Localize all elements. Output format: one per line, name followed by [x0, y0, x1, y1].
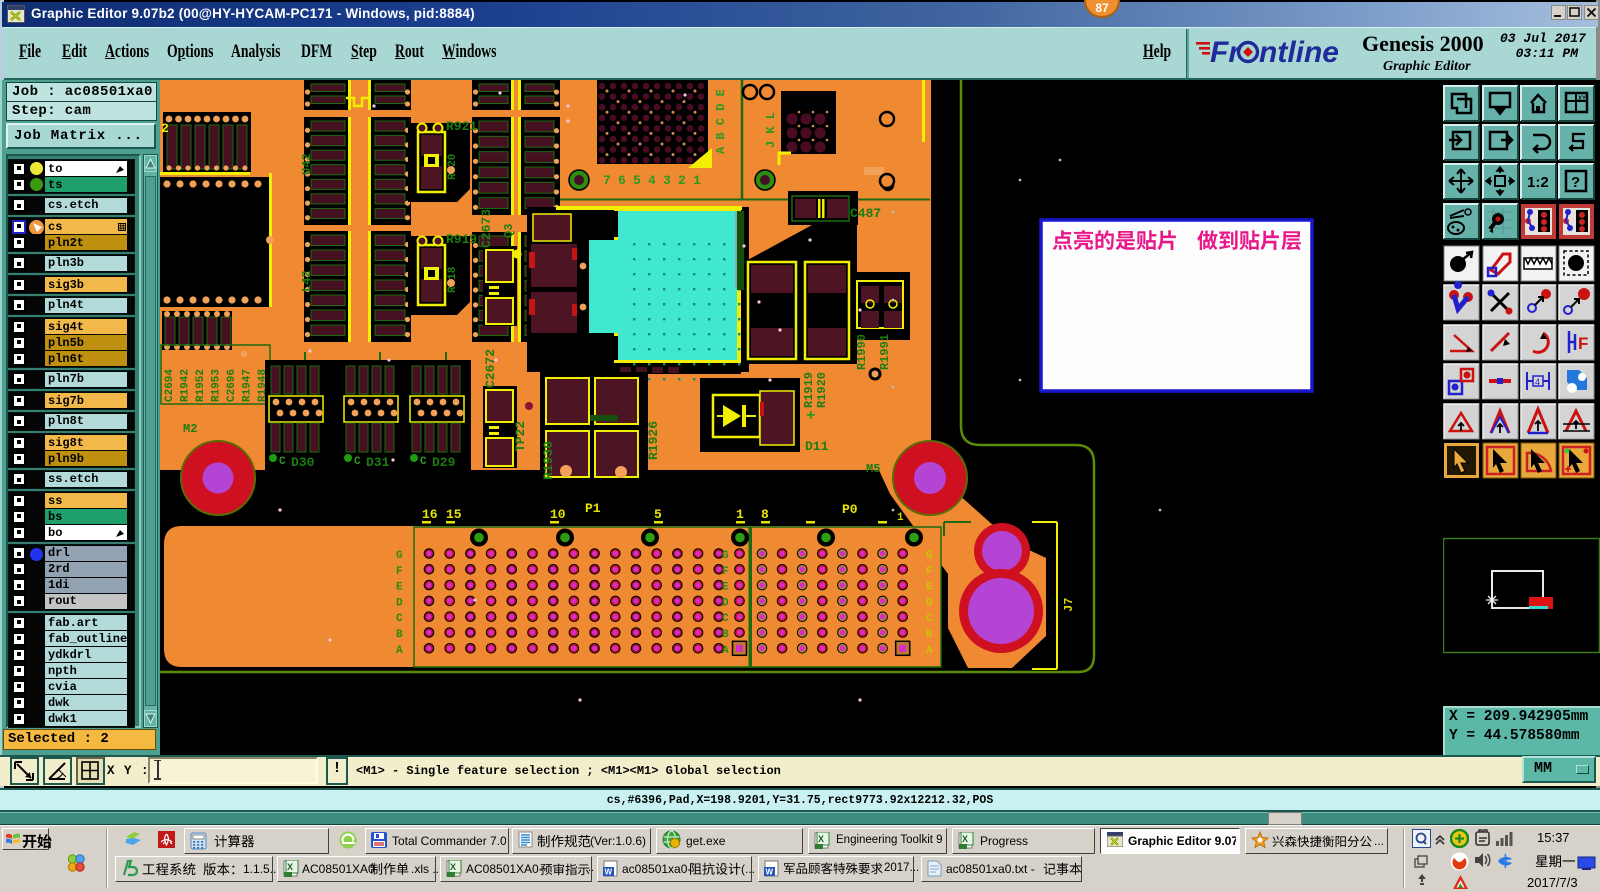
- svg-text:+: +: [806, 407, 816, 425]
- svg-text:F: F: [926, 566, 933, 578]
- svg-text:W: W: [605, 868, 613, 877]
- svg-text:2: 2: [678, 173, 686, 188]
- svg-text:C: C: [354, 456, 361, 468]
- svg-text:R1953: R1953: [211, 369, 223, 402]
- svg-text:D: D: [396, 597, 403, 609]
- svg-text:4: 4: [648, 173, 656, 188]
- svg-text:15: 15: [446, 507, 462, 522]
- svg-text:R1920: R1920: [815, 372, 829, 408]
- svg-text:C2694: C2694: [164, 369, 176, 402]
- svg-text:R919: R919: [446, 232, 477, 247]
- svg-text:F: F: [1578, 334, 1588, 353]
- svg-text:C: C: [279, 456, 286, 468]
- svg-text:P0: P0: [842, 502, 858, 517]
- svg-text:X: X: [962, 834, 968, 844]
- svg-text:L42: L42: [300, 270, 314, 292]
- svg-text:C: C: [722, 613, 729, 625]
- svg-text:?: ?: [1571, 174, 1580, 191]
- svg-text:U42: U42: [300, 153, 314, 175]
- svg-text:7: 7: [603, 173, 611, 188]
- svg-text:X: X: [287, 862, 293, 872]
- svg-text:R1990: R1990: [855, 334, 869, 370]
- svg-text:C: C: [420, 456, 427, 468]
- svg-text:5: 5: [633, 173, 641, 188]
- svg-text:R921: R921: [446, 119, 477, 134]
- svg-text:G: G: [926, 550, 933, 562]
- svg-text:B: B: [722, 629, 729, 641]
- svg-text:R1952: R1952: [195, 369, 207, 402]
- svg-text:C2672: C2672: [483, 349, 498, 388]
- svg-text:1: 1: [736, 507, 744, 522]
- svg-text:2: 2: [161, 121, 169, 136]
- svg-text:6: 6: [618, 173, 626, 188]
- svg-text:C: C: [926, 613, 933, 625]
- svg-text:G: G: [722, 550, 729, 562]
- svg-text:R1926: R1926: [646, 421, 661, 460]
- svg-text:A B C D E: A B C D E: [714, 89, 728, 154]
- svg-text:B: B: [926, 629, 933, 641]
- svg-text:D: D: [722, 597, 729, 609]
- svg-text:E: E: [926, 582, 933, 594]
- svg-text:5: 5: [654, 507, 662, 522]
- svg-text:F: F: [396, 566, 403, 578]
- svg-text:C2673: C2673: [479, 209, 494, 248]
- svg-text:D31: D31: [366, 455, 390, 470]
- svg-text:W: W: [766, 868, 774, 877]
- svg-text:C2696: C2696: [226, 369, 238, 402]
- svg-text:ntline: ntline: [1259, 36, 1339, 69]
- svg-text:Q3: Q3: [502, 224, 516, 238]
- svg-text:R1930: R1930: [541, 441, 556, 480]
- svg-text:D11: D11: [805, 439, 829, 454]
- svg-text:A: A: [396, 645, 403, 657]
- svg-text:D30: D30: [291, 455, 315, 470]
- svg-text:E: E: [396, 582, 403, 594]
- svg-text:C: C: [396, 613, 403, 625]
- svg-text:E: E: [722, 582, 729, 594]
- svg-text:1: 1: [897, 512, 904, 524]
- svg-text:F: F: [722, 566, 729, 578]
- svg-text:16: 16: [422, 507, 438, 522]
- svg-text:R1947: R1947: [242, 369, 254, 402]
- svg-text:R1919: R1919: [802, 372, 816, 408]
- svg-text:R1942: R1942: [180, 369, 192, 402]
- svg-text:X: X: [818, 834, 824, 844]
- svg-text:M2: M2: [183, 422, 197, 436]
- svg-text:1: 1: [693, 173, 701, 188]
- svg-text:J K L: J K L: [764, 112, 778, 148]
- svg-text:M5: M5: [866, 462, 880, 476]
- svg-text:B: B: [396, 629, 403, 641]
- svg-text:P1: P1: [585, 501, 601, 516]
- svg-text:C487: C487: [850, 206, 881, 221]
- svg-text:A: A: [926, 645, 933, 657]
- svg-text:XY: XY: [1578, 96, 1586, 102]
- svg-text:10: 10: [550, 507, 566, 522]
- svg-text:3: 3: [663, 173, 671, 188]
- svg-text:G: G: [396, 550, 403, 562]
- svg-text:R1991: R1991: [878, 334, 892, 370]
- svg-text:A: A: [722, 645, 729, 657]
- svg-text:D: D: [926, 597, 933, 609]
- svg-text:J7: J7: [1062, 598, 1076, 612]
- svg-text:X: X: [450, 862, 456, 872]
- svg-text:8: 8: [761, 507, 769, 522]
- svg-text:4: 4: [1535, 377, 1540, 387]
- svg-text:TP22: TP22: [513, 421, 528, 452]
- svg-text:D29: D29: [432, 455, 456, 470]
- svg-text:1:2: 1:2: [1527, 174, 1549, 191]
